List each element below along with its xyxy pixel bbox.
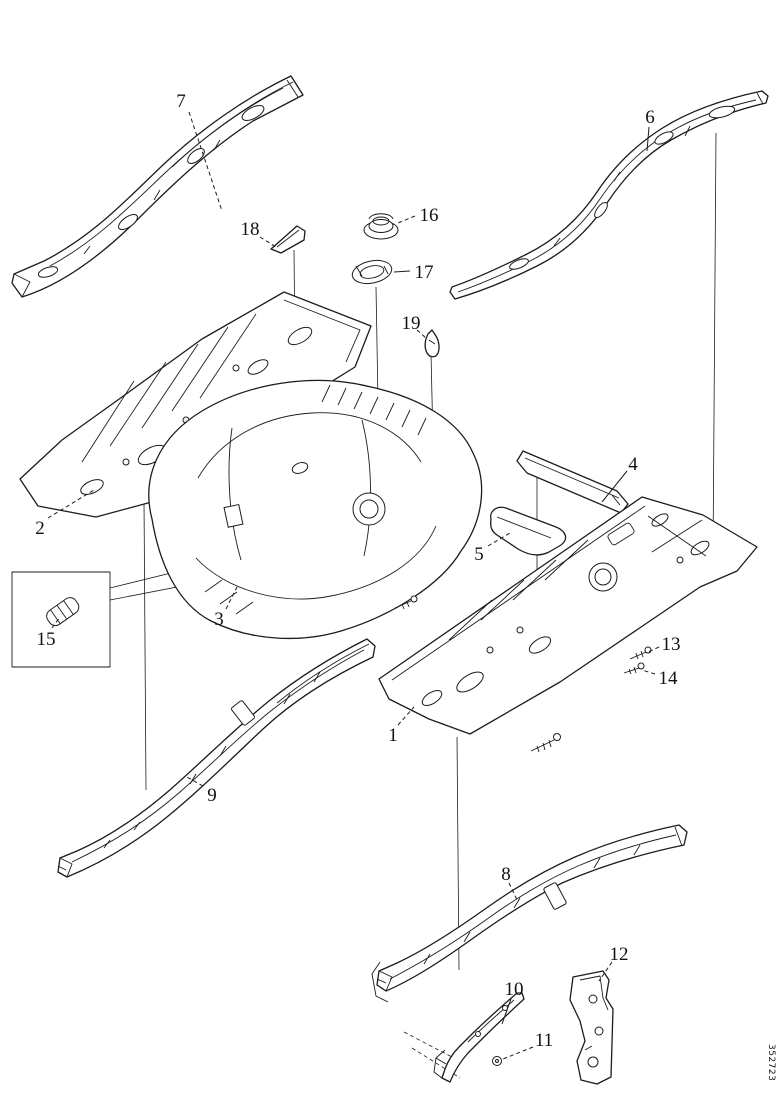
part-5-crossmember-bracket bbox=[491, 507, 566, 555]
callout-label-5: 5 bbox=[474, 544, 484, 565]
callout-label-6: 6 bbox=[645, 107, 655, 128]
part-7-left-rocker-rail bbox=[12, 76, 303, 297]
exploded-parts-diagram-page: 12345678910111213141516171819 352723 bbox=[0, 0, 778, 1100]
figure-code: 352723 bbox=[766, 1044, 776, 1081]
underbody-exploded-diagram: 12345678910111213141516171819 352723 bbox=[0, 0, 778, 1100]
part-17-cover-plate bbox=[350, 257, 394, 287]
callout-label-11: 11 bbox=[535, 1030, 553, 1051]
callout-leader-16 bbox=[398, 216, 415, 223]
callout-leader-18 bbox=[260, 237, 276, 247]
callout-label-15: 15 bbox=[37, 629, 56, 650]
callout-leader-11 bbox=[503, 1047, 533, 1059]
callout-label-19: 19 bbox=[402, 313, 421, 334]
part-4-floor-crossmember bbox=[517, 451, 628, 513]
callout-label-16: 16 bbox=[420, 205, 439, 226]
callout-label-8: 8 bbox=[501, 864, 511, 885]
callout-label-10: 10 bbox=[505, 979, 524, 1000]
part-18-shim bbox=[271, 226, 305, 253]
callout-label-12: 12 bbox=[610, 944, 629, 965]
callout-leader-14 bbox=[642, 670, 655, 674]
part-3-center-floor-pan bbox=[149, 380, 482, 638]
part-14-bolt bbox=[624, 663, 644, 674]
part-8-right-side-rail bbox=[372, 825, 687, 1002]
part-15-floor-plug bbox=[44, 595, 82, 628]
part-11-bolt bbox=[493, 1057, 502, 1066]
part-10-rail-extension-bracket bbox=[434, 993, 524, 1082]
callout-leader-17 bbox=[394, 271, 410, 272]
callout-label-17: 17 bbox=[415, 262, 434, 283]
callout-label-4: 4 bbox=[628, 454, 638, 475]
callout-label-18: 18 bbox=[241, 219, 260, 240]
part-9-left-side-rail bbox=[58, 639, 375, 877]
part-6-right-rocker-rail bbox=[450, 91, 768, 299]
callout-label-13: 13 bbox=[662, 634, 681, 655]
floor-attachment-bolt-right bbox=[531, 734, 561, 753]
part-13-bolt bbox=[630, 647, 651, 659]
part-15-detail-box bbox=[12, 572, 110, 667]
callout-label-3: 3 bbox=[214, 609, 224, 630]
callout-label-9: 9 bbox=[207, 785, 217, 806]
part-12-body-mount-bracket bbox=[570, 971, 613, 1084]
callout-label-2: 2 bbox=[35, 518, 45, 539]
callout-label-7: 7 bbox=[176, 91, 186, 112]
callout-label-14: 14 bbox=[659, 668, 679, 689]
part-16-grommet bbox=[364, 214, 398, 239]
callout-label-1: 1 bbox=[388, 725, 398, 746]
part-19-clip bbox=[425, 330, 439, 357]
